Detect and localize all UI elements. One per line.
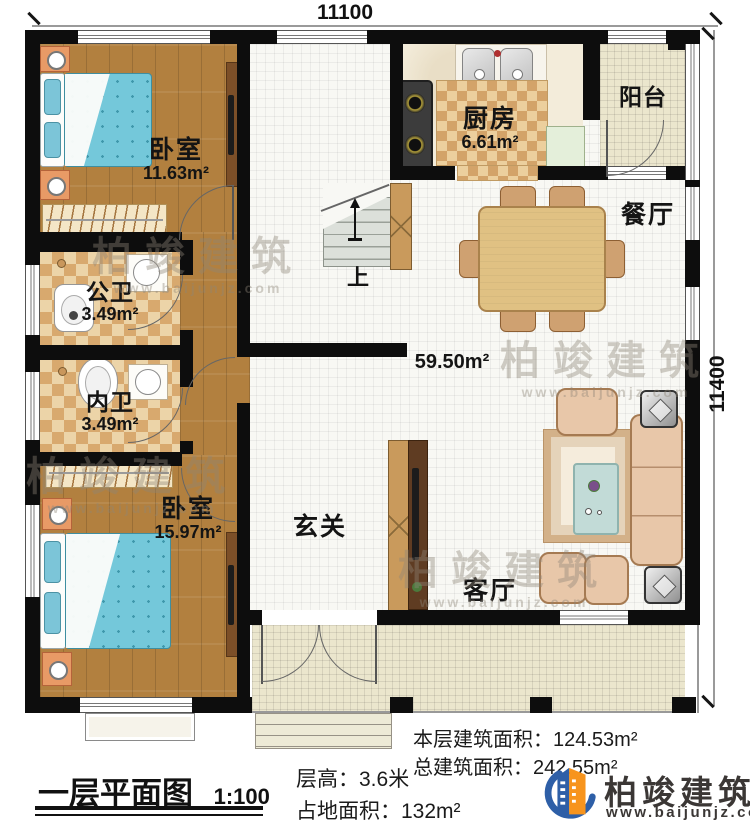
room-area: 3.49m²	[40, 415, 180, 434]
wall-segment	[390, 166, 455, 180]
brand-logo: 柏竣建筑 www.baijunjz.com	[540, 760, 740, 830]
stairs-direction-arrow	[354, 206, 356, 238]
wardrobe-rod	[49, 472, 169, 474]
bed-pillow	[44, 592, 61, 634]
balcony-railing	[685, 44, 700, 180]
room-label-dining: 餐厅	[600, 202, 696, 229]
stairs-up-label: 上	[340, 266, 376, 290]
room-name: 厨房	[410, 106, 570, 133]
window	[25, 505, 40, 597]
right-dimension-label: 11400	[706, 354, 730, 414]
stairs-arrow-foot	[348, 238, 362, 241]
window	[277, 30, 367, 44]
room-label-kitchen: 厨房 6.61m²	[410, 106, 570, 152]
window	[25, 265, 40, 335]
room-label-bedroom1: 卧室 11.63m²	[96, 137, 256, 183]
brand-website: www.baijunjz.com	[606, 804, 750, 821]
room-name: 玄关	[252, 514, 388, 541]
wall-segment	[377, 610, 560, 625]
room-label-public-bath: 公卫 3.49m²	[40, 280, 180, 324]
room-label-foyer: 玄关	[252, 514, 388, 541]
bed	[65, 533, 171, 649]
stairs-arrow-head	[350, 198, 360, 208]
room-name: 公卫	[40, 280, 180, 305]
dimension-tick	[709, 12, 722, 25]
table-cup	[585, 508, 592, 515]
wall-segment	[237, 30, 250, 232]
floor-lamp	[640, 390, 678, 428]
porch-pillar	[390, 697, 413, 713]
this-floor-area-text: 本层建筑面积：124.53m²	[413, 723, 638, 752]
porch-pillar	[672, 697, 696, 713]
table-cup	[597, 510, 602, 515]
title-underline	[35, 806, 263, 810]
dimension-tick	[27, 12, 40, 25]
wall-segment	[237, 232, 250, 343]
room-name: 客厅	[420, 578, 560, 605]
faucet	[494, 50, 501, 57]
coffee-table	[573, 463, 619, 535]
wall-segment	[180, 240, 193, 275]
room-name: 内卫	[40, 390, 180, 415]
wall-segment	[628, 610, 700, 625]
tv-screen	[228, 565, 234, 625]
porch-pillar	[230, 697, 252, 713]
porch-edge	[697, 625, 699, 713]
window	[560, 610, 628, 625]
room-area: 3.49m²	[40, 305, 180, 324]
entry-steps	[255, 713, 392, 749]
shower-head	[57, 259, 66, 268]
window	[685, 287, 700, 340]
floor-lamp	[644, 566, 682, 604]
room-name: 卧室	[108, 496, 268, 523]
shower-head	[58, 367, 67, 376]
room-area: 15.97m²	[108, 523, 268, 542]
bed-pillow	[44, 122, 61, 158]
window	[25, 372, 40, 440]
armchair	[584, 555, 629, 605]
room-area: 6.61m²	[410, 133, 570, 152]
room-area: 11.63m²	[96, 164, 256, 183]
top-dimension-line	[32, 25, 718, 27]
stairs-up-text: 上	[340, 266, 376, 290]
room-label-living: 客厅	[420, 578, 560, 605]
wall-segment	[25, 452, 182, 466]
tv-screen	[412, 468, 419, 560]
partition-cabinet	[388, 440, 410, 612]
wall-segment	[237, 343, 407, 357]
room-label-inner-bath: 内卫 3.49m²	[40, 390, 180, 434]
porch-pillar	[530, 697, 552, 713]
hall-area-label: 59.50m²	[392, 352, 512, 374]
wall-segment	[237, 403, 250, 466]
wardrobe-rod	[46, 219, 163, 221]
dining-table	[478, 206, 606, 312]
brand-logo-icon	[540, 762, 602, 829]
wall-segment	[25, 345, 193, 360]
room-name: 餐厅	[600, 202, 696, 229]
bed-pillow	[44, 541, 61, 583]
nightstand	[42, 652, 72, 686]
nightstand	[40, 170, 70, 200]
nightstand	[42, 498, 72, 530]
floor-plan-page: 11100 11400	[0, 0, 750, 836]
window	[80, 697, 192, 713]
floor-height-text: 层高：3.6米	[296, 763, 409, 793]
wall-segment	[25, 240, 193, 252]
sofa-three-seat	[630, 414, 683, 566]
kitchen-rug	[457, 166, 538, 181]
table-flowers	[588, 480, 600, 492]
wall-segment	[237, 610, 262, 625]
top-dimension-label: 11100	[250, 1, 440, 25]
room-name: 卧室	[96, 137, 256, 164]
armchair	[556, 388, 618, 436]
room-label-balcony: 阳台	[598, 85, 688, 110]
window	[608, 30, 666, 44]
room-name: 阳台	[598, 85, 688, 110]
ground-area-text: 占地面积：132m²	[296, 795, 461, 825]
area-value: 59.50m²	[392, 352, 512, 374]
side-step	[85, 713, 195, 741]
room-label-bedroom2: 卧室 15.97m²	[108, 496, 268, 542]
stair-post	[390, 183, 412, 270]
bed-pillow	[44, 79, 61, 115]
nightstand	[40, 46, 70, 72]
wall-segment	[390, 44, 403, 166]
window	[78, 30, 210, 44]
title-underline-thin	[35, 814, 263, 816]
